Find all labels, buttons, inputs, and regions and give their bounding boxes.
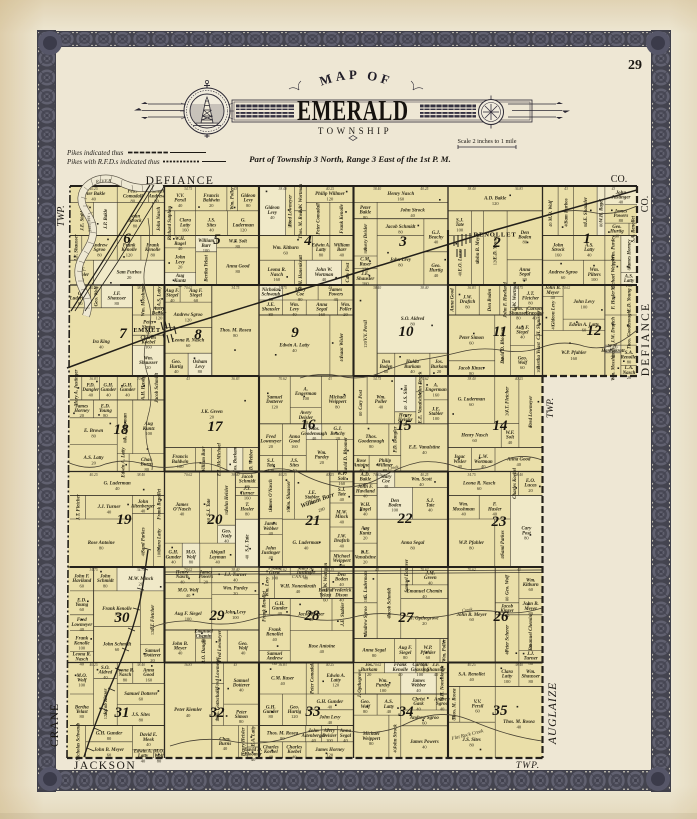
- svg-text:Fred Lowmeyer: Fred Lowmeyer: [529, 396, 534, 428]
- svg-text:80: 80: [369, 741, 374, 746]
- svg-text:40: 40: [440, 706, 445, 711]
- svg-text:40: 40: [434, 240, 439, 245]
- svg-text:40: 40: [517, 725, 522, 730]
- svg-text:Isaac Wisler: Isaac Wisler: [340, 333, 345, 359]
- svg-text:38.40: 38.40: [231, 473, 239, 477]
- svg-text:80: 80: [246, 203, 251, 208]
- svg-text:80: 80: [123, 677, 128, 682]
- svg-text:40: 40: [178, 651, 183, 656]
- svg-text:28: 28: [304, 608, 321, 624]
- svg-text:80: 80: [245, 512, 250, 517]
- svg-text:80: 80: [335, 404, 340, 409]
- svg-text:40: 40: [322, 277, 327, 282]
- svg-text:40: 40: [171, 560, 176, 565]
- svg-text:11: 11: [493, 324, 507, 340]
- svg-text:60: 60: [469, 340, 474, 345]
- svg-text:40: 40: [548, 222, 553, 227]
- svg-text:100: 100: [271, 575, 279, 580]
- svg-text:60: 60: [472, 438, 477, 443]
- svg-text:40: 40: [311, 738, 316, 743]
- svg-text:80: 80: [599, 222, 604, 227]
- svg-text:120: 120: [271, 404, 279, 409]
- svg-text:80: 80: [583, 222, 588, 227]
- svg-text:80: 80: [224, 509, 229, 514]
- svg-text:70.62: 70.62: [184, 286, 192, 290]
- svg-text:60: 60: [528, 587, 533, 592]
- svg-text:S.A. Renollet: S.A. Renollet: [632, 215, 637, 242]
- svg-text:EMERALD: EMERALD: [297, 95, 409, 127]
- svg-text:20: 20: [335, 436, 340, 441]
- svg-text:80: 80: [398, 263, 403, 268]
- svg-text:34.75: 34.75: [468, 473, 476, 477]
- svg-text:60: 60: [115, 647, 120, 652]
- svg-text:CO.: CO.: [640, 196, 651, 212]
- svg-text:70.62: 70.62: [468, 568, 476, 572]
- svg-text:43: 43: [186, 377, 190, 381]
- svg-text:100: 100: [417, 672, 425, 677]
- svg-text:40: 40: [379, 404, 384, 409]
- svg-text:100: 100: [145, 431, 153, 436]
- svg-text:36.83: 36.83: [468, 286, 476, 290]
- svg-text:E.A. Latty: E.A. Latty: [252, 725, 257, 747]
- svg-text:Peter Scherer: Peter Scherer: [506, 625, 511, 653]
- svg-text:160: 160: [338, 481, 346, 486]
- svg-text:40: 40: [619, 200, 624, 205]
- svg-text:Frank Kenolle: Frank Kenolle: [340, 203, 345, 233]
- svg-text:40: 40: [304, 546, 309, 551]
- svg-text:3: 3: [398, 234, 407, 250]
- svg-text:100: 100: [433, 416, 441, 421]
- svg-text:17: 17: [208, 419, 224, 435]
- svg-text:80: 80: [236, 269, 241, 274]
- svg-text:40: 40: [115, 486, 120, 491]
- svg-text:20: 20: [127, 275, 132, 280]
- svg-text:40: 40: [186, 713, 191, 718]
- svg-text:40: 40: [107, 510, 112, 515]
- svg-text:33: 33: [305, 704, 322, 720]
- svg-text:60: 60: [283, 250, 288, 255]
- svg-text:80: 80: [410, 546, 415, 551]
- svg-text:40: 40: [180, 579, 185, 584]
- svg-text:40: 40: [500, 357, 505, 362]
- svg-text:60: 60: [469, 617, 474, 622]
- svg-text:160: 160: [555, 252, 563, 257]
- svg-text:80: 80: [115, 301, 120, 306]
- svg-text:Cary Post: Cary Post: [346, 262, 351, 282]
- svg-text:40: 40: [141, 509, 146, 514]
- svg-text:Thos. Goodenough: Thos. Goodenough: [628, 310, 633, 349]
- svg-text:60: 60: [194, 298, 199, 303]
- svg-text:Pikes indicated thus: Pikes indicated thus: [66, 149, 124, 157]
- svg-text:Clara Latty: Clara Latty: [158, 528, 163, 552]
- svg-text:160: 160: [182, 228, 190, 233]
- svg-text:40: 40: [334, 297, 339, 302]
- svg-text:10: 10: [399, 324, 415, 340]
- svg-text:40: 40: [268, 531, 273, 536]
- svg-text:36.83: 36.83: [515, 187, 523, 191]
- svg-text:38.40: 38.40: [373, 187, 381, 191]
- svg-text:CRANE: CRANE: [49, 703, 61, 747]
- svg-text:Wm. Poller: Wm. Poller: [443, 639, 448, 662]
- svg-text:100: 100: [78, 646, 86, 651]
- svg-text:80: 80: [363, 248, 368, 253]
- svg-text:40: 40: [422, 744, 427, 749]
- svg-text:80: 80: [131, 199, 136, 204]
- svg-text:34.75: 34.75: [184, 187, 192, 191]
- svg-text:19: 19: [117, 512, 133, 528]
- svg-text:RENOLLET: RENOLLET: [473, 232, 516, 239]
- svg-text:40: 40: [461, 512, 466, 517]
- svg-text:40: 40: [457, 271, 462, 276]
- svg-text:40: 40: [88, 392, 93, 397]
- svg-text:40: 40: [146, 742, 151, 747]
- svg-text:120: 120: [327, 197, 335, 202]
- svg-text:80: 80: [523, 277, 528, 282]
- svg-text:80: 80: [150, 252, 155, 257]
- svg-text:7: 7: [119, 326, 127, 342]
- svg-text:40: 40: [520, 335, 525, 340]
- svg-text:43: 43: [328, 286, 332, 290]
- svg-text:20: 20: [233, 591, 238, 596]
- svg-text:38.40: 38.40: [373, 286, 381, 290]
- svg-text:40.25: 40.25: [90, 473, 98, 477]
- svg-text:80: 80: [372, 653, 377, 658]
- svg-text:40: 40: [280, 681, 285, 686]
- svg-text:100: 100: [363, 595, 368, 603]
- svg-text:60: 60: [80, 583, 85, 588]
- svg-text:80: 80: [239, 719, 244, 724]
- svg-text:David D. Bloomer: David D. Bloomer: [344, 437, 349, 475]
- svg-text:TWP.: TWP.: [546, 398, 556, 418]
- svg-text:40: 40: [339, 543, 344, 548]
- svg-text:Bertha Yelast: Bertha Yelast: [537, 342, 542, 370]
- svg-text:40: 40: [312, 436, 317, 441]
- svg-text:40: 40: [469, 677, 474, 682]
- svg-text:40: 40: [339, 357, 344, 362]
- svg-text:120: 120: [156, 316, 164, 321]
- svg-text:31: 31: [114, 705, 130, 721]
- svg-text:80: 80: [198, 369, 203, 374]
- svg-text:70.62: 70.62: [420, 568, 428, 572]
- svg-text:CANAL: CANAL: [292, 574, 308, 579]
- svg-text:60: 60: [469, 402, 474, 407]
- svg-text:36.83: 36.83: [184, 663, 192, 667]
- svg-text:TWP.: TWP.: [516, 761, 540, 771]
- svg-text:36.83: 36.83: [231, 377, 239, 381]
- svg-text:40: 40: [343, 738, 348, 743]
- svg-text:A.S. Latty: A.S. Latty: [158, 285, 163, 307]
- svg-text:120: 120: [150, 628, 155, 636]
- svg-text:40: 40: [403, 405, 408, 410]
- svg-text:40.25: 40.25: [420, 187, 428, 191]
- svg-text:6: 6: [123, 231, 131, 247]
- svg-text:Cary Post: Cary Post: [359, 389, 364, 409]
- svg-text:8: 8: [194, 327, 202, 343]
- svg-text:40: 40: [320, 649, 325, 654]
- svg-text:120: 120: [492, 201, 500, 206]
- svg-text:40: 40: [387, 709, 392, 714]
- svg-text:40: 40: [174, 369, 179, 374]
- svg-text:60: 60: [520, 365, 525, 370]
- svg-text:40: 40: [170, 298, 175, 303]
- svg-text:40: 40: [428, 580, 433, 585]
- svg-text:20: 20: [209, 203, 214, 208]
- svg-text:80: 80: [133, 223, 138, 228]
- svg-text:Gideon Levy: Gideon Levy: [551, 300, 556, 326]
- svg-text:40: 40: [99, 344, 104, 349]
- svg-text:40.25: 40.25: [420, 473, 428, 477]
- svg-text:Frank Renollet: Frank Renollet: [158, 488, 163, 519]
- svg-text:43: 43: [328, 377, 332, 381]
- svg-text:4: 4: [303, 233, 312, 249]
- svg-text:40: 40: [587, 252, 592, 257]
- svg-text:40.25: 40.25: [90, 663, 98, 667]
- svg-text:160: 160: [291, 444, 299, 449]
- svg-text:38.40: 38.40: [279, 187, 287, 191]
- svg-text:James Horney: James Horney: [628, 239, 633, 270]
- svg-text:V.V. Persil: V.V. Persil: [364, 320, 369, 341]
- svg-text:120: 120: [363, 340, 368, 348]
- svg-text:160: 160: [570, 356, 578, 361]
- svg-text:40: 40: [180, 512, 185, 517]
- svg-text:34.75: 34.75: [90, 568, 98, 572]
- svg-text:60: 60: [139, 696, 144, 701]
- svg-text:23: 23: [491, 514, 508, 530]
- svg-text:100: 100: [326, 738, 334, 743]
- svg-text:40: 40: [233, 577, 238, 582]
- svg-text:80: 80: [107, 736, 112, 741]
- svg-text:20: 20: [363, 560, 368, 565]
- svg-text:43: 43: [375, 568, 379, 572]
- svg-text:70.62: 70.62: [279, 377, 287, 381]
- svg-text:14: 14: [493, 418, 509, 434]
- svg-text:20: 20: [363, 536, 368, 541]
- svg-text:80: 80: [469, 743, 474, 748]
- svg-text:40: 40: [270, 215, 275, 220]
- svg-text:120: 120: [493, 258, 498, 266]
- svg-text:38.40: 38.40: [137, 663, 145, 667]
- svg-text:80: 80: [528, 679, 533, 684]
- svg-text:70.62: 70.62: [137, 377, 145, 381]
- svg-text:80: 80: [269, 312, 274, 317]
- svg-text:80: 80: [80, 714, 85, 719]
- svg-text:20: 20: [343, 312, 348, 317]
- svg-text:160: 160: [244, 496, 252, 501]
- svg-text:100: 100: [591, 277, 599, 282]
- svg-text:John Heisler: John Heisler: [225, 485, 230, 512]
- svg-text:40.25: 40.25: [468, 663, 476, 667]
- svg-text:34.75: 34.75: [373, 377, 381, 381]
- svg-text:38.40: 38.40: [137, 473, 145, 477]
- svg-text:34.75: 34.75: [515, 286, 523, 290]
- svg-text:20: 20: [422, 621, 427, 626]
- svg-text:40: 40: [434, 672, 439, 677]
- svg-text:Pikes with R.F.D.s indicated t: Pikes with R.F.D.s indicated thus: [66, 158, 160, 166]
- svg-text:40: 40: [500, 554, 505, 559]
- svg-text:38.40: 38.40: [515, 473, 523, 477]
- svg-text:70.62: 70.62: [184, 473, 192, 477]
- svg-text:J.P. Bakle: J.P. Bakle: [104, 208, 109, 230]
- svg-text:80: 80: [233, 333, 238, 338]
- svg-text:JACKSON: JACKSON: [74, 760, 136, 772]
- svg-text:80: 80: [103, 583, 108, 588]
- svg-text:16: 16: [301, 417, 317, 433]
- svg-text:70.62: 70.62: [562, 286, 570, 290]
- svg-text:40: 40: [410, 369, 415, 374]
- svg-text:40: 40: [508, 440, 513, 445]
- svg-text:100: 100: [504, 679, 512, 684]
- svg-text:40: 40: [186, 593, 191, 598]
- svg-text:CO.: CO.: [611, 174, 627, 185]
- svg-text:Peter Comadall: Peter Comadall: [311, 662, 316, 694]
- svg-text:AUGLAIZE: AUGLAIZE: [547, 682, 559, 745]
- svg-text:40: 40: [363, 512, 368, 517]
- svg-text:B.O. Dangler: B.O. Dangler: [202, 637, 207, 665]
- svg-text:21: 21: [305, 513, 321, 529]
- svg-text:80: 80: [627, 360, 632, 365]
- svg-text:40: 40: [422, 450, 427, 455]
- svg-text:40: 40: [384, 484, 389, 489]
- svg-text:120: 120: [126, 252, 134, 257]
- svg-text:40: 40: [80, 627, 85, 632]
- svg-text:43: 43: [612, 286, 616, 290]
- svg-text:60: 60: [475, 709, 480, 714]
- svg-text:100: 100: [581, 305, 589, 310]
- svg-text:Scale 2 inches to 1 mile: Scale 2 inches to 1 mile: [458, 138, 517, 145]
- svg-text:John F. Haviland: John F. Haviland: [504, 282, 509, 319]
- svg-text:Wm. Shausser: Wm. Shausser: [287, 481, 292, 510]
- svg-text:60: 60: [422, 720, 427, 725]
- svg-text:Samuel Dotterer: Samuel Dotterer: [405, 559, 410, 592]
- svg-text:Edwin A. Latty: Edwin A. Latty: [122, 447, 127, 479]
- svg-text:60: 60: [107, 752, 112, 757]
- svg-text:40: 40: [178, 203, 183, 208]
- svg-text:18: 18: [114, 422, 130, 438]
- svg-text:60: 60: [80, 607, 85, 612]
- svg-text:60: 60: [561, 275, 566, 280]
- svg-text:40: 40: [551, 295, 556, 300]
- svg-text:40: 40: [392, 748, 397, 753]
- svg-text:Saml Parkes: Saml Parkes: [501, 530, 506, 556]
- svg-text:J.W. Draftch: J.W. Draftch: [611, 317, 616, 344]
- svg-text:40: 40: [505, 650, 510, 655]
- svg-text:Saml Parkes: Saml Parkes: [142, 527, 147, 553]
- svg-text:40: 40: [245, 554, 250, 559]
- svg-text:120: 120: [332, 683, 340, 688]
- svg-text:36.83: 36.83: [279, 663, 287, 667]
- svg-text:DEFIANCE: DEFIANCE: [640, 302, 652, 376]
- svg-text:40.25: 40.25: [326, 187, 334, 191]
- svg-text:G. Luderman: G. Luderman: [364, 571, 369, 598]
- svg-text:Anna Good: Anna Good: [450, 288, 455, 313]
- svg-text:160: 160: [433, 392, 441, 397]
- svg-text:70.62: 70.62: [373, 473, 381, 477]
- svg-text:40: 40: [215, 560, 220, 565]
- svg-text:80: 80: [465, 304, 470, 309]
- svg-text:40: 40: [422, 594, 427, 599]
- svg-text:15: 15: [397, 418, 413, 434]
- svg-text:40: 40: [339, 598, 344, 603]
- svg-text:160: 160: [145, 677, 153, 682]
- svg-text:40: 40: [241, 651, 246, 656]
- svg-text:38.40: 38.40: [468, 187, 476, 191]
- svg-text:40: 40: [339, 252, 344, 257]
- svg-text:Thos. M. Rosea: Thos. M. Rosea: [299, 207, 304, 239]
- svg-text:1: 1: [583, 231, 591, 247]
- svg-text:80: 80: [139, 718, 144, 723]
- svg-text:40: 40: [419, 482, 424, 487]
- svg-text:Nicholas Schwaub: Nicholas Schwaub: [76, 722, 81, 761]
- svg-text:Part of Township 3 North, Rang: Part of Township 3 North, Range 3 East o…: [249, 154, 451, 164]
- svg-text:40: 40: [339, 519, 344, 524]
- svg-text:60: 60: [477, 486, 482, 491]
- svg-text:20: 20: [504, 411, 509, 416]
- svg-text:40: 40: [328, 704, 333, 709]
- svg-text:40: 40: [428, 508, 433, 513]
- svg-text:100: 100: [536, 365, 541, 373]
- svg-text:Peter Comadall: Peter Comadall: [317, 203, 322, 235]
- svg-text:40: 40: [416, 706, 421, 711]
- svg-text:20: 20: [320, 460, 325, 465]
- svg-text:40: 40: [178, 246, 183, 251]
- svg-text:38.40: 38.40: [137, 286, 145, 290]
- svg-text:32: 32: [209, 705, 226, 721]
- svg-text:160: 160: [273, 277, 281, 282]
- svg-text:40: 40: [339, 582, 344, 587]
- svg-text:20: 20: [528, 488, 533, 493]
- svg-text:40: 40: [223, 746, 228, 751]
- svg-text:34.75: 34.75: [231, 286, 239, 290]
- svg-text:40: 40: [292, 348, 297, 353]
- svg-text:34: 34: [398, 704, 415, 720]
- svg-text:80: 80: [269, 714, 274, 719]
- svg-text:40.25: 40.25: [279, 473, 287, 477]
- svg-text:120: 120: [240, 228, 248, 233]
- svg-text:43: 43: [564, 187, 568, 191]
- svg-text:120: 120: [185, 317, 193, 322]
- svg-text:60: 60: [323, 598, 328, 603]
- svg-text:DEFIANCE: DEFIANCE: [146, 175, 215, 187]
- svg-text:80: 80: [516, 316, 521, 321]
- svg-text:80: 80: [358, 411, 363, 416]
- svg-text:20: 20: [80, 413, 85, 418]
- svg-text:20: 20: [269, 444, 274, 449]
- svg-text:John Nasch: John Nasch: [157, 206, 162, 232]
- svg-text:Frank Renollet: Frank Renollet: [263, 590, 268, 621]
- svg-text:20: 20: [204, 579, 209, 584]
- svg-text:160: 160: [397, 197, 405, 202]
- svg-text:40: 40: [328, 720, 333, 725]
- svg-text:100: 100: [286, 505, 291, 513]
- svg-text:40: 40: [272, 637, 277, 642]
- svg-text:EMMET: EMMET: [133, 327, 161, 334]
- svg-text:40: 40: [106, 392, 111, 397]
- svg-text:20: 20: [91, 461, 96, 466]
- svg-text:9: 9: [291, 325, 299, 341]
- svg-text:80: 80: [236, 244, 241, 249]
- svg-text:12: 12: [587, 323, 603, 339]
- svg-text:60: 60: [528, 423, 533, 428]
- svg-text:29: 29: [628, 58, 642, 73]
- svg-text:TWP.: TWP.: [56, 205, 67, 226]
- svg-text:40: 40: [91, 197, 96, 202]
- svg-text:E.D. Young: E.D. Young: [628, 288, 633, 313]
- svg-text:40: 40: [528, 644, 533, 649]
- svg-text:160: 160: [145, 345, 153, 350]
- svg-text:30: 30: [114, 610, 131, 626]
- svg-text:40: 40: [224, 539, 229, 544]
- svg-text:20: 20: [437, 369, 442, 374]
